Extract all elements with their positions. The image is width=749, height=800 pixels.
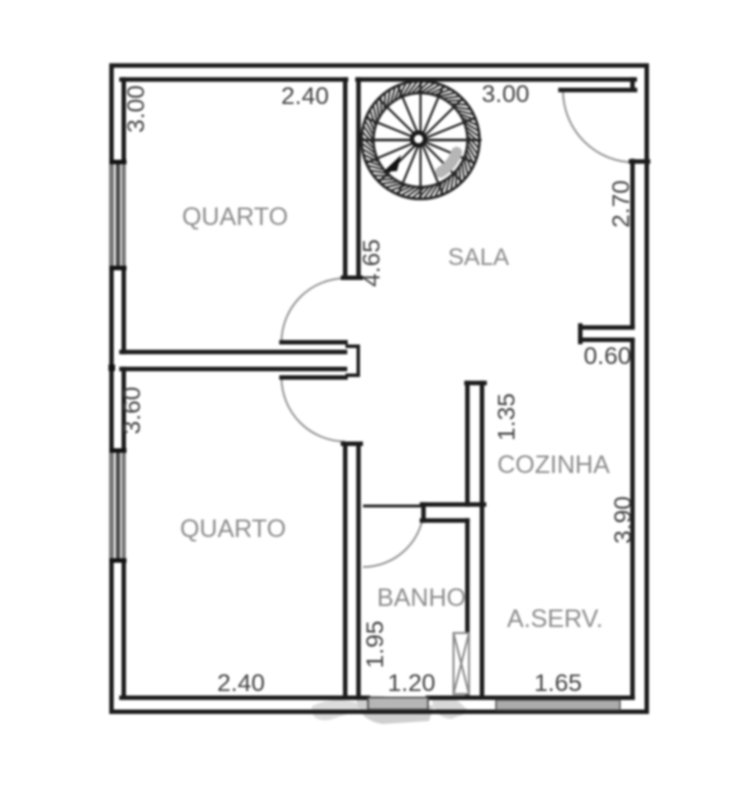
svg-text:3.90: 3.90 xyxy=(610,496,637,544)
svg-text:COZINHA: COZINHA xyxy=(497,451,610,479)
svg-text:QUARTO: QUARTO xyxy=(180,515,286,543)
svg-text:1.65: 1.65 xyxy=(534,670,582,697)
svg-text:1.35: 1.35 xyxy=(494,393,521,441)
svg-text:BANHO: BANHO xyxy=(377,584,466,612)
svg-text:2.40: 2.40 xyxy=(217,670,265,697)
svg-text:QUARTO: QUARTO xyxy=(182,203,288,231)
svg-text:3.00: 3.00 xyxy=(123,85,150,133)
svg-text:0.60: 0.60 xyxy=(584,343,632,370)
svg-text:2.70: 2.70 xyxy=(608,180,635,228)
svg-text:2.40: 2.40 xyxy=(281,83,329,110)
svg-text:3.60: 3.60 xyxy=(119,387,146,435)
svg-text:SALA: SALA xyxy=(448,244,509,271)
svg-text:1.95: 1.95 xyxy=(362,621,389,669)
svg-text:3.00: 3.00 xyxy=(482,81,530,108)
svg-text:A.SERV.: A.SERV. xyxy=(507,605,603,633)
svg-text:4.65: 4.65 xyxy=(359,239,386,287)
svg-text:1.20: 1.20 xyxy=(388,670,436,697)
